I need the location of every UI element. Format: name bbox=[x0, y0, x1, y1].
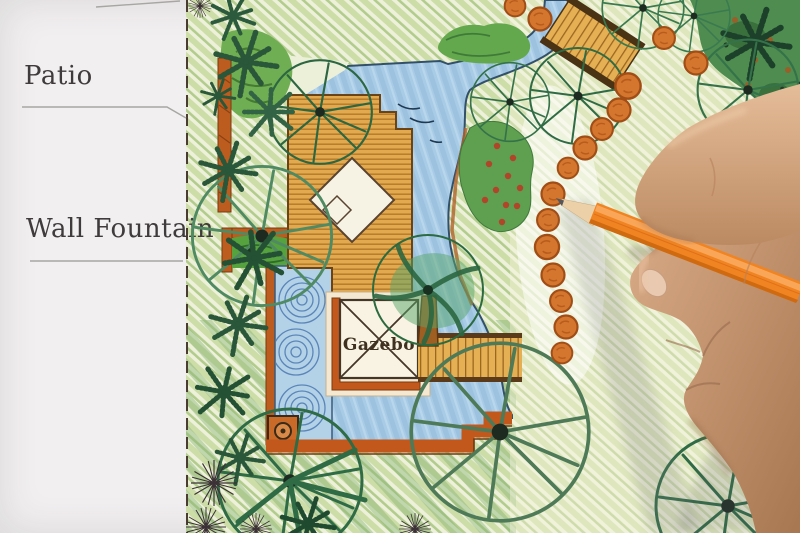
stepping-stone bbox=[591, 118, 613, 140]
margin-labels: Patio Wall Fountain bbox=[22, 1, 214, 261]
stepping-stone bbox=[685, 52, 708, 75]
label-wall-fountain: Wall Fountain bbox=[26, 214, 214, 244]
stepping-stone bbox=[550, 290, 572, 312]
stepping-stone bbox=[529, 8, 552, 31]
label-patio: Patio bbox=[24, 61, 93, 91]
stepping-stone bbox=[608, 99, 631, 122]
photo-of-landscape-plan: Patio Wall Fountain Gazebo bbox=[0, 0, 800, 533]
stepping-stone bbox=[615, 73, 640, 98]
stepping-stone bbox=[653, 27, 675, 49]
boardwalk-rail-bottom bbox=[418, 377, 522, 382]
pump-dot bbox=[281, 429, 286, 434]
stepping-stone bbox=[552, 343, 573, 364]
stepping-stone bbox=[537, 209, 559, 231]
leader-line-patio bbox=[22, 107, 186, 118]
stepping-stone bbox=[574, 137, 597, 160]
stepping-stone bbox=[542, 264, 565, 287]
tree-center bbox=[423, 285, 433, 295]
stepping-stone bbox=[555, 316, 578, 339]
stepping-stone bbox=[535, 235, 559, 259]
label-gazebo: Gazebo bbox=[343, 335, 415, 355]
stepping-stone bbox=[558, 158, 579, 179]
stepping-stone bbox=[505, 0, 526, 16]
plan-photo-canvas: Patio Wall Fountain Gazebo bbox=[0, 0, 800, 533]
leader-line-top bbox=[96, 1, 180, 7]
